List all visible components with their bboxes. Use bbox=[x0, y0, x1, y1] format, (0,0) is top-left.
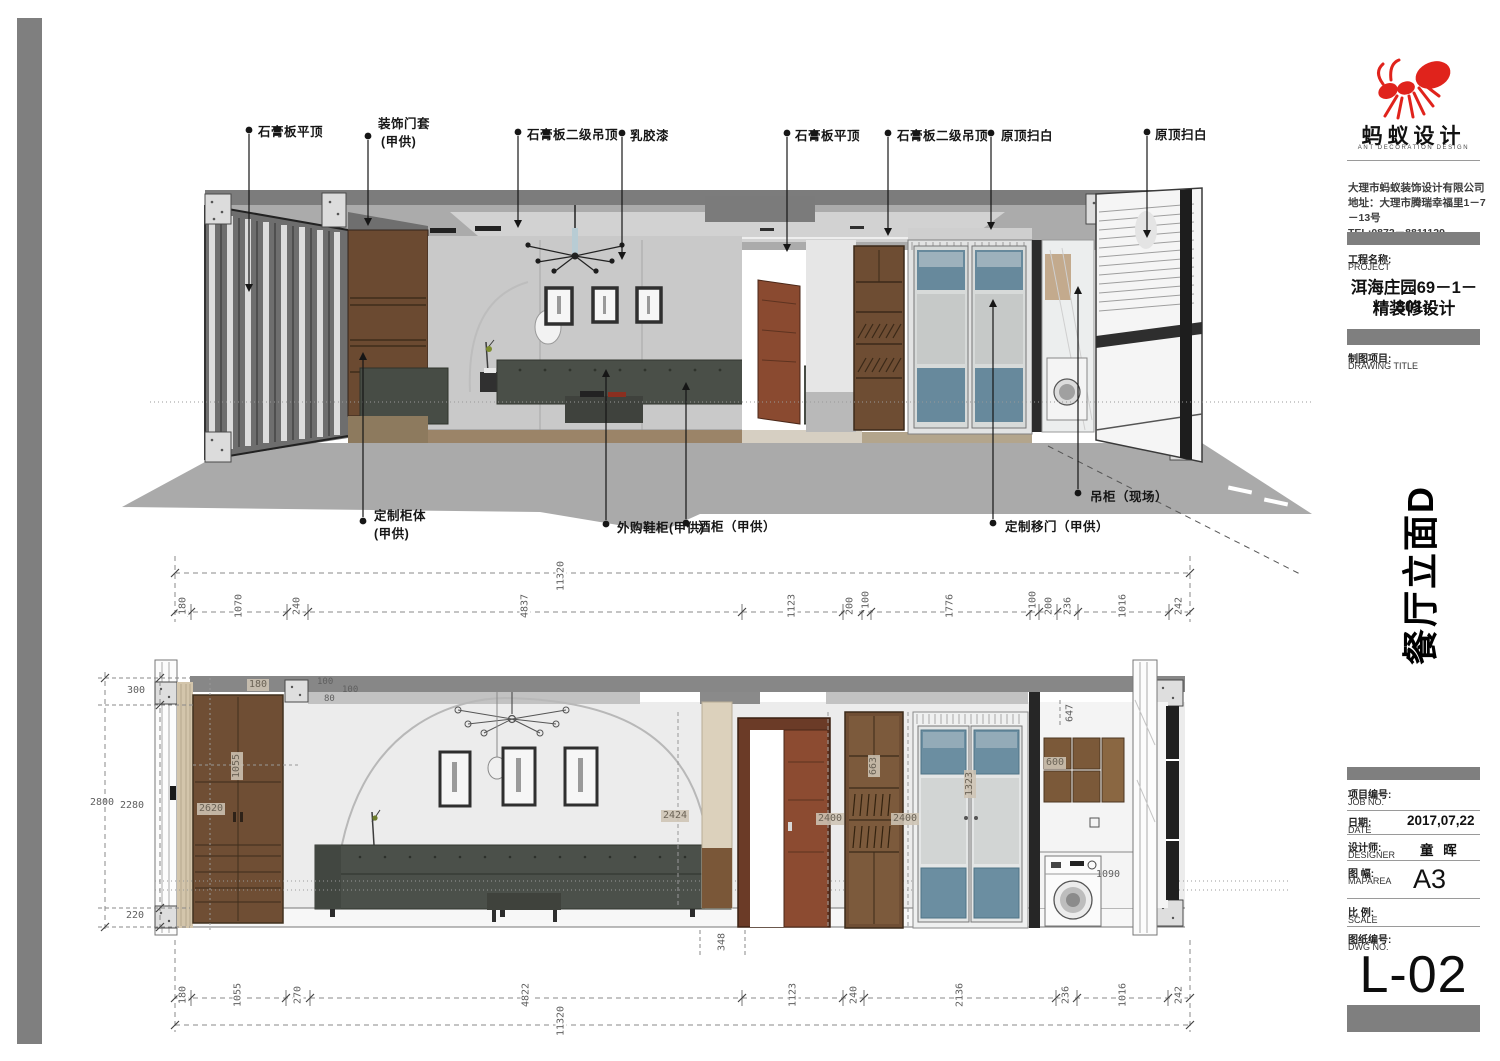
dim-seg: 1055 bbox=[233, 982, 244, 1008]
dim-220: 220 bbox=[126, 910, 144, 921]
dim-seg: 180 bbox=[178, 596, 189, 616]
elevation-title-vertical: 餐厅立面D bbox=[1392, 485, 1444, 665]
dim-2620-chip: 2620 bbox=[197, 803, 225, 815]
dim-2424-chip: 2424 bbox=[661, 810, 689, 822]
callout-door-casing-note: (甲供) bbox=[381, 131, 416, 150]
company-name: 大理市蚂蚁装饰设计有限公司 bbox=[1348, 181, 1488, 196]
designer-value: 童 晖 bbox=[1420, 839, 1460, 859]
callout-gypsum-two-level-ceiling-2: 石膏板二级吊顶 bbox=[897, 125, 988, 144]
dim-total-top: 11320 bbox=[556, 560, 567, 592]
dim-2800: 2800 bbox=[90, 797, 114, 808]
dim-100a: 100 bbox=[317, 677, 333, 687]
callout-gypsum-flat-ceiling-1: 石膏板平顶 bbox=[258, 121, 323, 140]
callout-original-ceiling-white-1: 原顶扫白 bbox=[1001, 125, 1053, 144]
drawing-sheet: 石膏板平顶 装饰门套 (甲供) 石膏板二级吊顶 乳胶漆 石膏板平顶 石膏板二级吊… bbox=[0, 0, 1500, 1061]
company-address: 地址：大理市腾瑞幸福里1－7－13号 bbox=[1348, 196, 1488, 226]
dim-2400b-chip: 2400 bbox=[891, 813, 919, 825]
dim-2400a-chip: 2400 bbox=[816, 813, 844, 825]
callout-door-casing: 装饰门套 bbox=[378, 113, 430, 132]
dim-600-chip: 600 bbox=[1044, 757, 1066, 769]
project-name-line2: 精装修设计 bbox=[1341, 295, 1487, 319]
dim-seg: 240 bbox=[849, 985, 860, 1005]
dim-seg: 100 bbox=[861, 590, 872, 610]
dim-2280: 2280 bbox=[120, 800, 144, 811]
job-no-label-en: JOB NO. bbox=[1348, 797, 1384, 807]
designer-label-en: DESIGNER bbox=[1348, 850, 1395, 860]
maparea-value: A3 bbox=[1413, 864, 1446, 895]
brand-name-en: ANT DECORATION DESIGN bbox=[1347, 145, 1480, 151]
callout-custom-cabinet-note: (甲供) bbox=[374, 523, 409, 542]
dim-seg: 1070 bbox=[234, 593, 245, 619]
dim-seg: 242 bbox=[1174, 596, 1185, 616]
dim-seg: 180 bbox=[178, 985, 189, 1005]
callout-latex-paint: 乳胶漆 bbox=[630, 125, 669, 144]
dim-seg: 1123 bbox=[788, 982, 799, 1008]
maparea-label-en: MAPAREA bbox=[1348, 876, 1391, 886]
drawing-title-label-en: DRAWING TITLE bbox=[1348, 361, 1418, 371]
dim-1055-chip: 1055 bbox=[231, 752, 243, 780]
ant-logo-icon bbox=[1361, 50, 1471, 122]
dwg-no-value: L-02 bbox=[1347, 945, 1480, 1005]
dim-1323-chip: 1323 bbox=[964, 770, 976, 798]
dim-seg: 4837 bbox=[520, 593, 531, 619]
dim-647: 647 bbox=[1065, 703, 1076, 723]
dim-80: 80 bbox=[324, 694, 335, 704]
dim-300: 300 bbox=[127, 685, 145, 696]
dim-348: 348 bbox=[717, 932, 728, 952]
callout-sliding-door: 定制移门（甲供） bbox=[1005, 516, 1109, 535]
dim-seg: 1016 bbox=[1118, 982, 1129, 1008]
dim-seg: 200 bbox=[1044, 596, 1055, 616]
dim-seg: 200 bbox=[845, 596, 856, 616]
dim-663-chip: 663 bbox=[868, 755, 880, 777]
dim-total-bottom: 11320 bbox=[556, 1005, 567, 1037]
dim-seg: 236 bbox=[1063, 596, 1074, 616]
callout-gypsum-flat-ceiling-2: 石膏板平顶 bbox=[795, 125, 860, 144]
dim-seg: 1776 bbox=[945, 593, 956, 619]
callout-hanging-cabinet: 吊柜（现场） bbox=[1090, 486, 1168, 505]
dim-seg: 240 bbox=[292, 596, 303, 616]
callout-shoe-cabinet: 外购鞋柜(甲供) bbox=[617, 517, 704, 536]
dim-seg: 4822 bbox=[521, 982, 532, 1008]
dim-seg: 236 bbox=[1061, 985, 1072, 1005]
callout-gypsum-two-level-ceiling-1: 石膏板二级吊顶 bbox=[527, 124, 618, 143]
dim-seg: 242 bbox=[1174, 985, 1185, 1005]
dim-seg: 100 bbox=[1028, 590, 1039, 610]
project-label-en: PROJECT bbox=[1348, 262, 1390, 272]
callout-custom-cabinet: 定制柜体 bbox=[374, 505, 426, 524]
dim-1090: 1090 bbox=[1096, 869, 1120, 880]
scale-label-en: SCALE bbox=[1348, 915, 1378, 925]
dim-seg: 1123 bbox=[787, 593, 798, 619]
sheet-left-margin-bar bbox=[17, 18, 42, 1044]
callout-original-ceiling-white-2: 原顶扫白 bbox=[1155, 124, 1207, 143]
dim-100b: 100 bbox=[342, 685, 358, 695]
date-value: 2017,07,22 bbox=[1407, 813, 1475, 828]
dim-180-chip: 180 bbox=[247, 679, 269, 691]
dim-seg: 1016 bbox=[1118, 593, 1129, 619]
callout-wine-cabinet: 酒柜（甲供） bbox=[698, 516, 776, 535]
dim-seg: 2136 bbox=[955, 982, 966, 1008]
dim-seg: 270 bbox=[293, 985, 304, 1005]
